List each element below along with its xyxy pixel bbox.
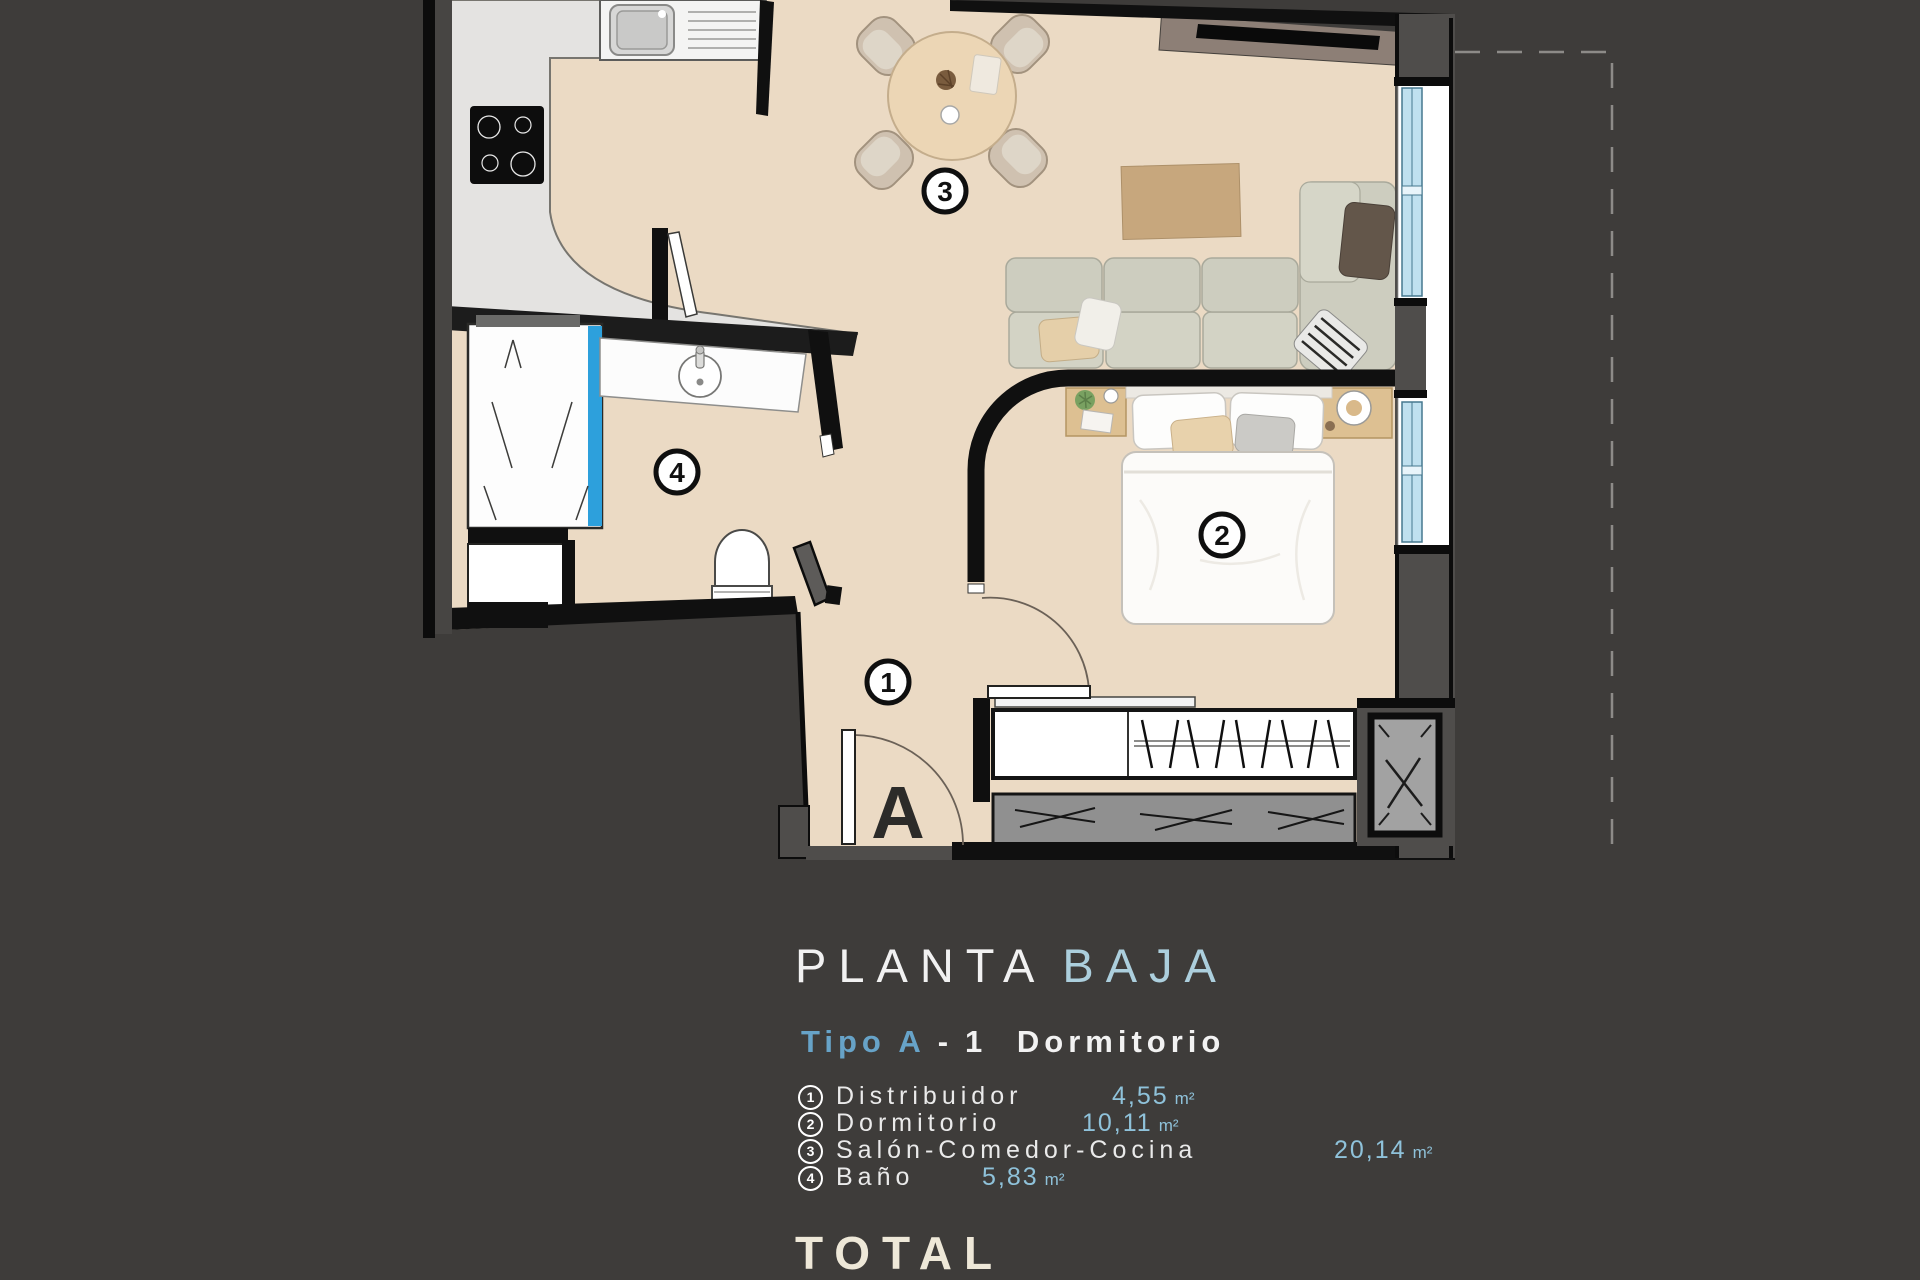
legend-badge: 4	[798, 1166, 823, 1191]
subtitle-rest: 1 Dormitorio	[965, 1024, 1225, 1059]
entry-step	[779, 806, 809, 858]
pillow-brown	[1338, 202, 1395, 281]
wall-stub-hall	[652, 228, 668, 322]
cooktop	[470, 106, 544, 184]
legend-area-unit: m²	[1175, 1089, 1195, 1108]
towel-bar	[476, 315, 580, 327]
legend-badge: 3	[798, 1139, 823, 1164]
entrance-letter: A	[871, 771, 924, 854]
left-wall-face	[434, 0, 452, 634]
wardrobe	[993, 710, 1355, 778]
legend-row-dormitorio: 2Dormitorio 10,11m²	[798, 1109, 1197, 1136]
window-bedroom	[1402, 402, 1422, 542]
legend-area-unit: m²	[1045, 1170, 1065, 1189]
room-label-salon: 3	[924, 170, 966, 212]
elevator-nook	[1357, 698, 1455, 846]
legend-room-name: Baño	[836, 1163, 914, 1191]
left-wall	[423, 0, 435, 638]
pillow-accent-gray	[1234, 414, 1295, 457]
svg-text:1: 1	[880, 667, 896, 698]
bathroom-door-stub	[825, 585, 842, 605]
window-pier	[1395, 298, 1426, 398]
svg-text:3: 3	[937, 176, 953, 207]
bathroom-door-jamb	[820, 434, 834, 457]
shower-divider-wall	[468, 528, 568, 544]
utility-niche	[468, 544, 570, 610]
hall-closet-zone	[973, 697, 1355, 844]
entry-bench	[993, 794, 1355, 844]
svg-text:4: 4	[669, 457, 685, 488]
svg-text:2: 2	[1214, 520, 1230, 551]
title-main: PLANTA	[795, 939, 1046, 992]
elevator	[1371, 716, 1439, 834]
room-label-distribuidor: 1	[867, 661, 909, 703]
legend-room-area: 10,11m²	[1082, 1109, 1179, 1138]
legend-room-area: 20,14m²	[1334, 1136, 1432, 1165]
bed	[1122, 386, 1334, 624]
kitchen-sink	[600, 0, 765, 60]
subtitle-separator: -	[938, 1024, 953, 1059]
niche-wall-stub	[562, 540, 575, 612]
shower	[468, 315, 602, 528]
page-title: PLANTABAJA	[795, 938, 1228, 993]
legend-room-area: 4,55m²	[1112, 1082, 1195, 1111]
bedroom-door-jamb	[968, 584, 984, 593]
title-accent: BAJA	[1062, 939, 1228, 992]
floorplan-page: 1 2 3 4 A PLANTABAJA Tipo A-1 Dormitorio…	[0, 0, 1920, 1280]
total-label: TOTAL	[795, 1226, 1004, 1280]
legend-area-unit: m²	[1413, 1143, 1433, 1162]
legend-badge: 2	[798, 1112, 823, 1137]
room-legend: 1Distribuidor 4,55m² 2Dormitorio 10,11m²…	[798, 1082, 1197, 1190]
legend-room-name: Salón-Comedor-Cocina	[836, 1136, 1197, 1164]
subtitle-accent: Tipo A	[801, 1024, 926, 1059]
legend-badge: 1	[798, 1085, 823, 1110]
boundary-dashed-line	[1455, 52, 1612, 856]
legend-row-bano: 4Baño 5,83m²	[798, 1163, 1197, 1190]
room-label-dormitorio: 2	[1201, 514, 1243, 556]
wall-stub-closet	[973, 698, 990, 802]
legend-row-distribuidor: 1Distribuidor 4,55m²	[798, 1082, 1197, 1109]
legend-row-salon: 3Salón-Comedor-Cocina 20,14m²	[798, 1136, 1197, 1163]
legend-room-area: 5,83m²	[982, 1163, 1065, 1192]
dining-table	[888, 32, 1016, 160]
unit-type-subtitle: Tipo A-1 Dormitorio	[801, 1024, 1225, 1060]
window-living	[1402, 88, 1422, 296]
rug	[1121, 163, 1241, 239]
toilet	[712, 530, 772, 604]
legend-area-unit: m²	[1159, 1116, 1179, 1135]
bathroom-bottom-wall-thick	[468, 602, 548, 628]
legend-room-name: Distribuidor	[836, 1082, 1022, 1110]
legend-room-name: Dormitorio	[836, 1109, 1001, 1137]
room-label-bano: 4	[656, 451, 698, 493]
